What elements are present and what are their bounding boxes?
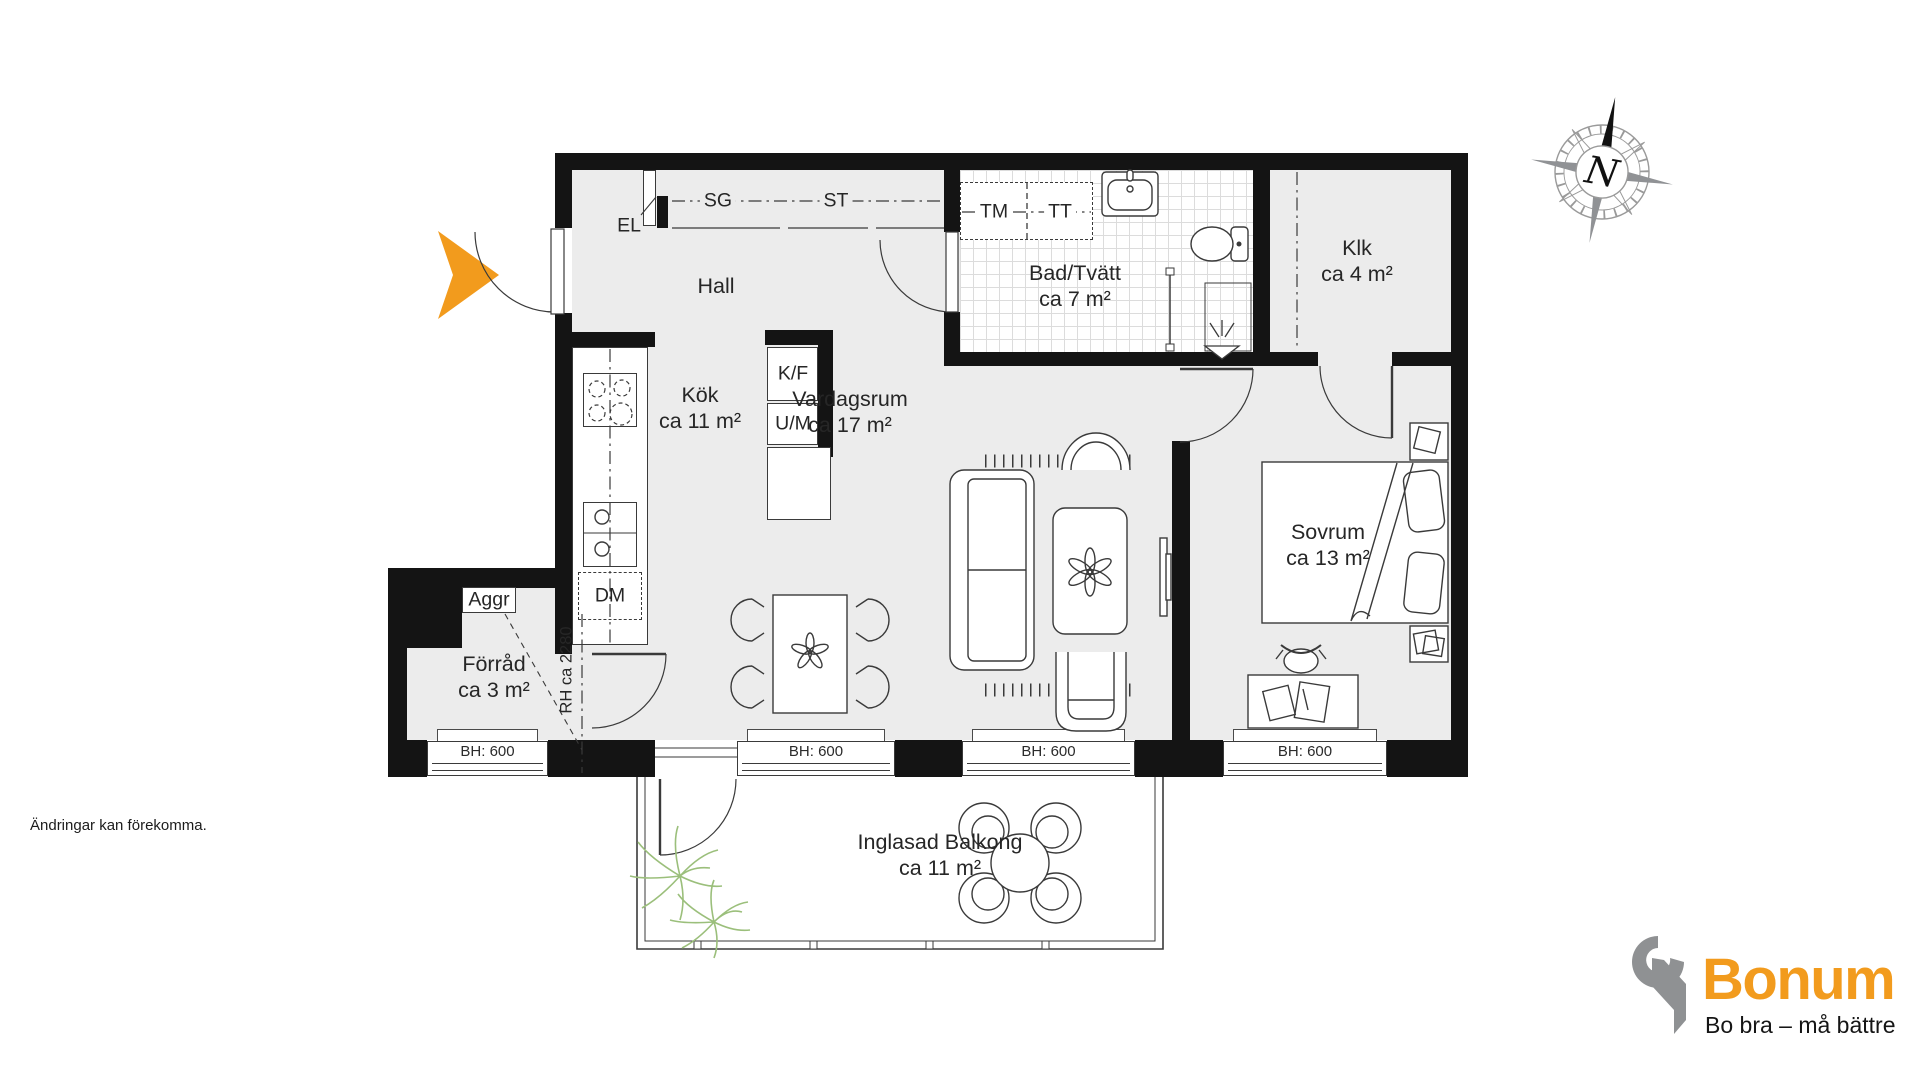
el-cabinet: [643, 170, 656, 226]
window-glass: [1228, 763, 1382, 771]
el-niche: [657, 196, 668, 228]
compass-rose: N: [1519, 85, 1687, 256]
room-name: Sovrum: [1286, 519, 1370, 545]
room-name: Vardagsrum: [792, 386, 908, 412]
room-name: Bad/Tvätt: [1029, 260, 1121, 286]
room-name: Hall: [697, 273, 734, 299]
room-label-bad: Bad/Tvätt ca 7 m²: [1029, 260, 1121, 312]
wall-segment: [555, 332, 655, 347]
room-height-label: RH ca 2280: [558, 626, 577, 713]
room-label-sovrum: Sovrum ca 13 m²: [1286, 519, 1370, 571]
wall-segment: [1172, 441, 1190, 740]
bonum-mark-icon: [1632, 936, 1686, 1034]
wall-segment: [1387, 740, 1468, 777]
wall-segment: [555, 153, 1468, 170]
disclaimer-text: Ändringar kan förekomma.: [30, 817, 207, 834]
island-wall-top: [765, 330, 833, 345]
room-name: Klk: [1321, 235, 1393, 261]
room-label-balkong: Inglasad Balkong ca 11 m²: [858, 829, 1023, 881]
window-glass: [967, 763, 1130, 771]
wardrobe-sg-label: SG: [700, 190, 736, 213]
el-label: EL: [617, 215, 641, 238]
entrance-door: [475, 229, 564, 314]
stove: [583, 373, 637, 427]
brand-tagline: Bo bra – må bättre: [1705, 1012, 1896, 1038]
wall-segment: [555, 170, 572, 228]
wardrobe-st-label: ST: [820, 190, 853, 213]
wall-segment: [944, 170, 960, 232]
brand-name: Bonum: [1702, 947, 1894, 1012]
dishwasher-label: DM: [595, 585, 625, 608]
north-needle-icon: [1595, 96, 1623, 173]
washing-machine-label: TM: [976, 201, 1012, 224]
room-label-forrad: Förråd ca 3 m²: [458, 651, 530, 703]
wall-segment: [1270, 352, 1318, 366]
wall-segment: [1253, 170, 1270, 366]
window-bedroom: BH: 600: [1223, 741, 1387, 776]
window-height-label: BH: 600: [1278, 743, 1332, 760]
compass-north-label: N: [1581, 147, 1624, 197]
window-glass: [432, 763, 543, 771]
wall-segment: [388, 648, 407, 740]
room-area: ca 13 m²: [1286, 545, 1370, 571]
room-area: ca 7 m²: [1029, 286, 1121, 312]
room-area: ca 11 m²: [858, 855, 1023, 881]
room-area: ca 17 m²: [792, 412, 908, 438]
wall-segment: [895, 740, 962, 777]
window-livingroom: BH: 600: [962, 741, 1135, 776]
wall-segment: [388, 568, 462, 648]
room-name: Förråd: [458, 651, 530, 677]
window-glass: [742, 763, 890, 771]
window-height-label: BH: 600: [789, 743, 843, 760]
wall-segment: [572, 740, 655, 777]
window-forrad: BH: 600: [427, 741, 548, 776]
dryer-label: TT: [1044, 201, 1076, 224]
room-label-klk: Klk ca 4 m²: [1321, 235, 1393, 287]
window-kitchen: BH: 600: [737, 741, 895, 776]
room-area: ca 4 m²: [1321, 261, 1393, 287]
room-name: Inglasad Balkong: [858, 829, 1023, 855]
fridge-freezer-label: K/F: [778, 363, 808, 386]
room-area: ca 11 m²: [659, 408, 741, 434]
window-height-label: BH: 600: [1021, 743, 1075, 760]
wall-segment: [944, 352, 1270, 366]
window-height-label: BH: 600: [460, 743, 514, 760]
wall-segment: [462, 568, 572, 588]
kitchen-sink: [583, 502, 637, 567]
room-name: Kök: [659, 382, 741, 408]
wall-segment: [1135, 740, 1223, 777]
island-counter: [767, 447, 831, 520]
room-area: ca 3 m²: [458, 677, 530, 703]
balcony-plants-icon: [630, 826, 750, 958]
floor-plan-page: BH: 600 BH: 600 BH: 600 BH: 600: [0, 0, 1920, 1080]
room-label-vardagsrum: Vardagsrum ca 17 m²: [792, 386, 908, 438]
aggr-label: Aggr: [468, 589, 509, 612]
wall-segment: [388, 740, 427, 777]
wall-segment: [555, 347, 572, 568]
wall-segment: [548, 740, 572, 777]
room-label-hall: Hall: [697, 273, 734, 299]
wall-segment: [1451, 170, 1468, 777]
balcony-door: [655, 748, 737, 855]
entrance-arrow-icon: [438, 231, 499, 319]
room-label-kok: Kök ca 11 m²: [659, 382, 741, 434]
bonum-logo: Bonum Bo bra – må bättre: [1632, 936, 1896, 1038]
